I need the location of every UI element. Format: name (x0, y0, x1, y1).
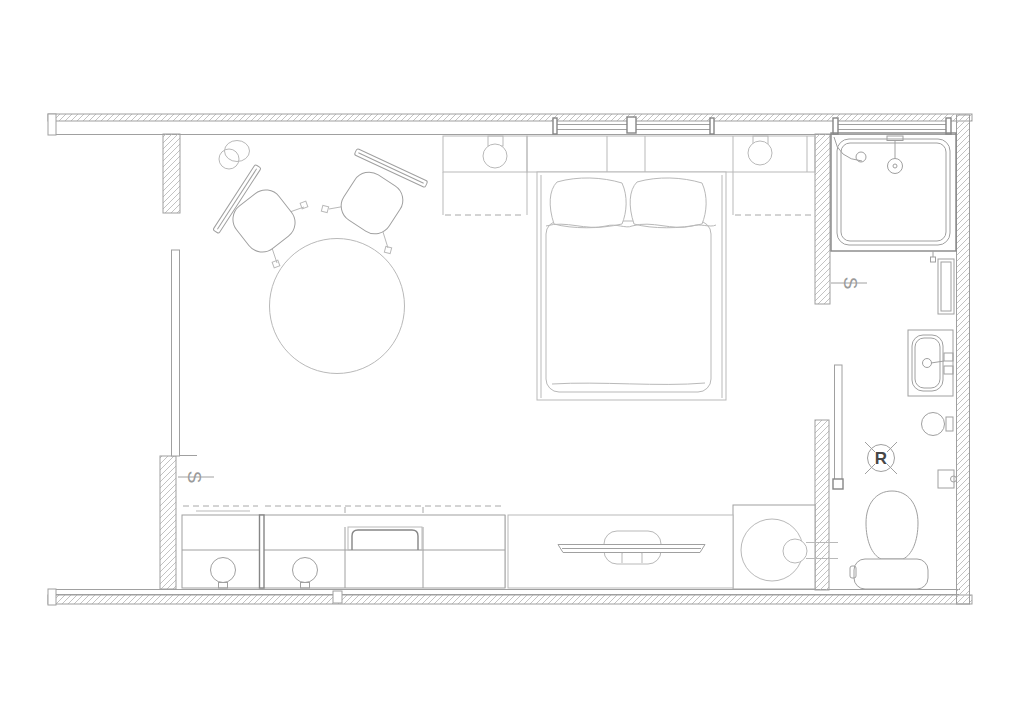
r-marker: R (865, 442, 897, 474)
floor-plan-canvas: R (0, 0, 1024, 724)
bedside-console-right (733, 136, 813, 215)
pillow (630, 178, 706, 228)
window-end-cap (710, 118, 714, 134)
shower-tray (837, 139, 950, 245)
wall-end-cap (48, 114, 56, 135)
double-bed (537, 172, 726, 400)
wall-stud (333, 591, 342, 603)
toilet-tank (854, 559, 928, 589)
bathroom-wall-lower (815, 420, 829, 590)
entry-sliding-door (172, 250, 180, 456)
pillow (550, 178, 626, 228)
shower-head-icon (887, 136, 903, 174)
window-mullion (627, 117, 636, 133)
chair-seat (335, 166, 410, 241)
switch-label: S (840, 277, 861, 290)
window-end-cap (833, 118, 838, 134)
dining-table (270, 239, 405, 374)
bathroom-wall-upper (815, 134, 830, 304)
wall-light-icon (219, 141, 250, 170)
shower (831, 133, 956, 262)
drum-door (783, 539, 807, 563)
toilet-bowl (866, 491, 918, 559)
table-lamp-icon (748, 141, 772, 165)
window-end-cap (946, 118, 951, 134)
counter-divider (260, 515, 265, 588)
shower-enclosure (831, 133, 956, 251)
right-wall (957, 115, 970, 604)
door-end-cap (833, 479, 843, 489)
switch-symbol-entry: S (178, 471, 214, 484)
hand-shower-icon (834, 137, 866, 162)
left-wall-upper (163, 134, 180, 213)
shower-drain (931, 251, 936, 262)
bathroom-wall-cabinet (938, 259, 954, 314)
washbasin (908, 330, 953, 396)
chair-right (321, 148, 427, 253)
table-lamp-icon (483, 144, 507, 168)
bedside-console-left (443, 136, 527, 215)
towel-ring (922, 413, 954, 436)
kitchenette-counter (182, 506, 505, 588)
toilet-paper-holder (938, 470, 957, 488)
switch-label: S (184, 471, 205, 484)
r-marker-label: R (875, 449, 887, 468)
wall-end-cap (48, 589, 56, 605)
toilet (850, 491, 928, 589)
switch-symbol-bathroom: S (831, 277, 867, 290)
bathroom-sliding-door (833, 365, 843, 489)
window-end-cap (553, 118, 557, 134)
chair-left (213, 164, 308, 267)
floor-plan-drawing: R (0, 0, 1024, 724)
bottom-wall (48, 589, 972, 605)
